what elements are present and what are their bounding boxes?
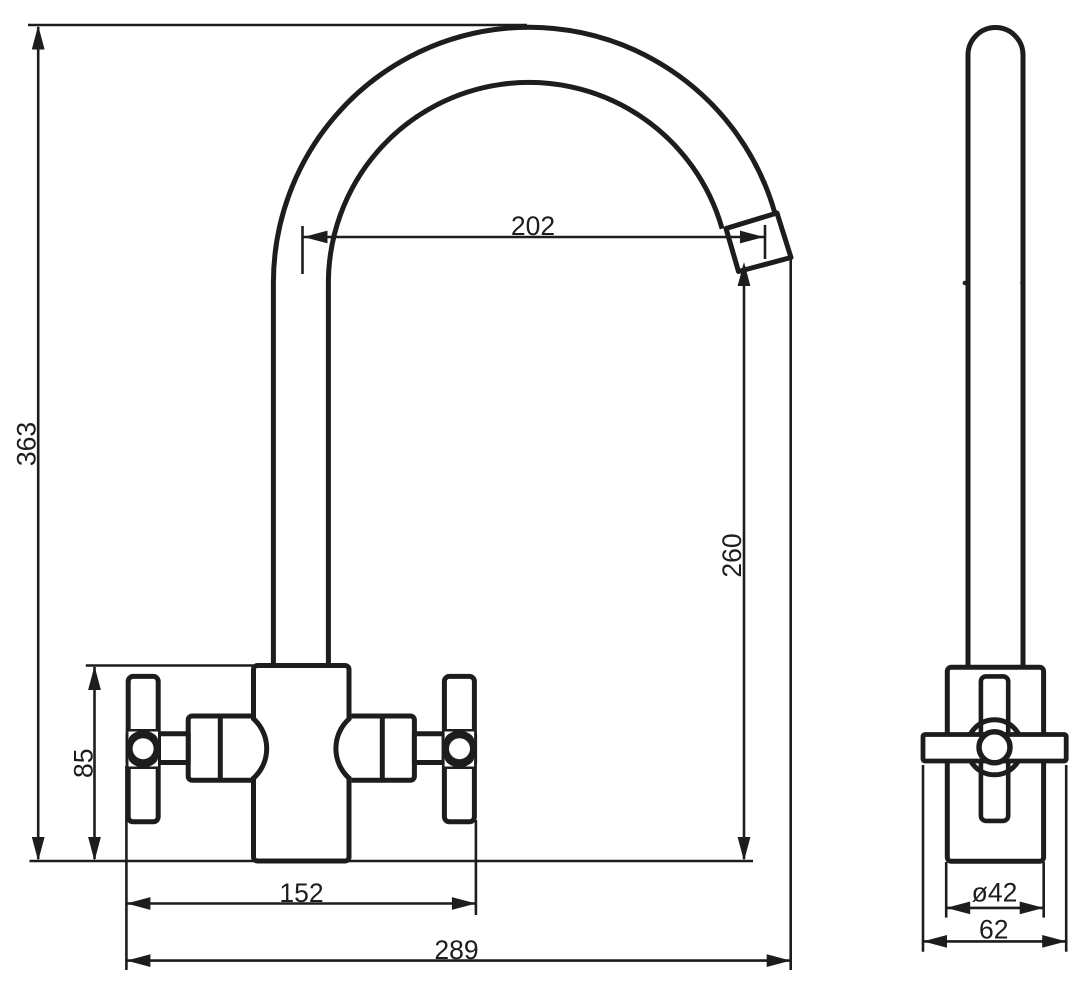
svg-text:152: 152: [279, 878, 323, 908]
svg-text:62: 62: [979, 915, 1008, 945]
svg-text:260: 260: [717, 533, 747, 577]
svg-text:363: 363: [11, 422, 41, 466]
svg-text:ø42: ø42: [972, 878, 1018, 908]
svg-text:202: 202: [511, 211, 555, 241]
svg-text:289: 289: [434, 935, 478, 965]
svg-text:85: 85: [69, 749, 99, 778]
